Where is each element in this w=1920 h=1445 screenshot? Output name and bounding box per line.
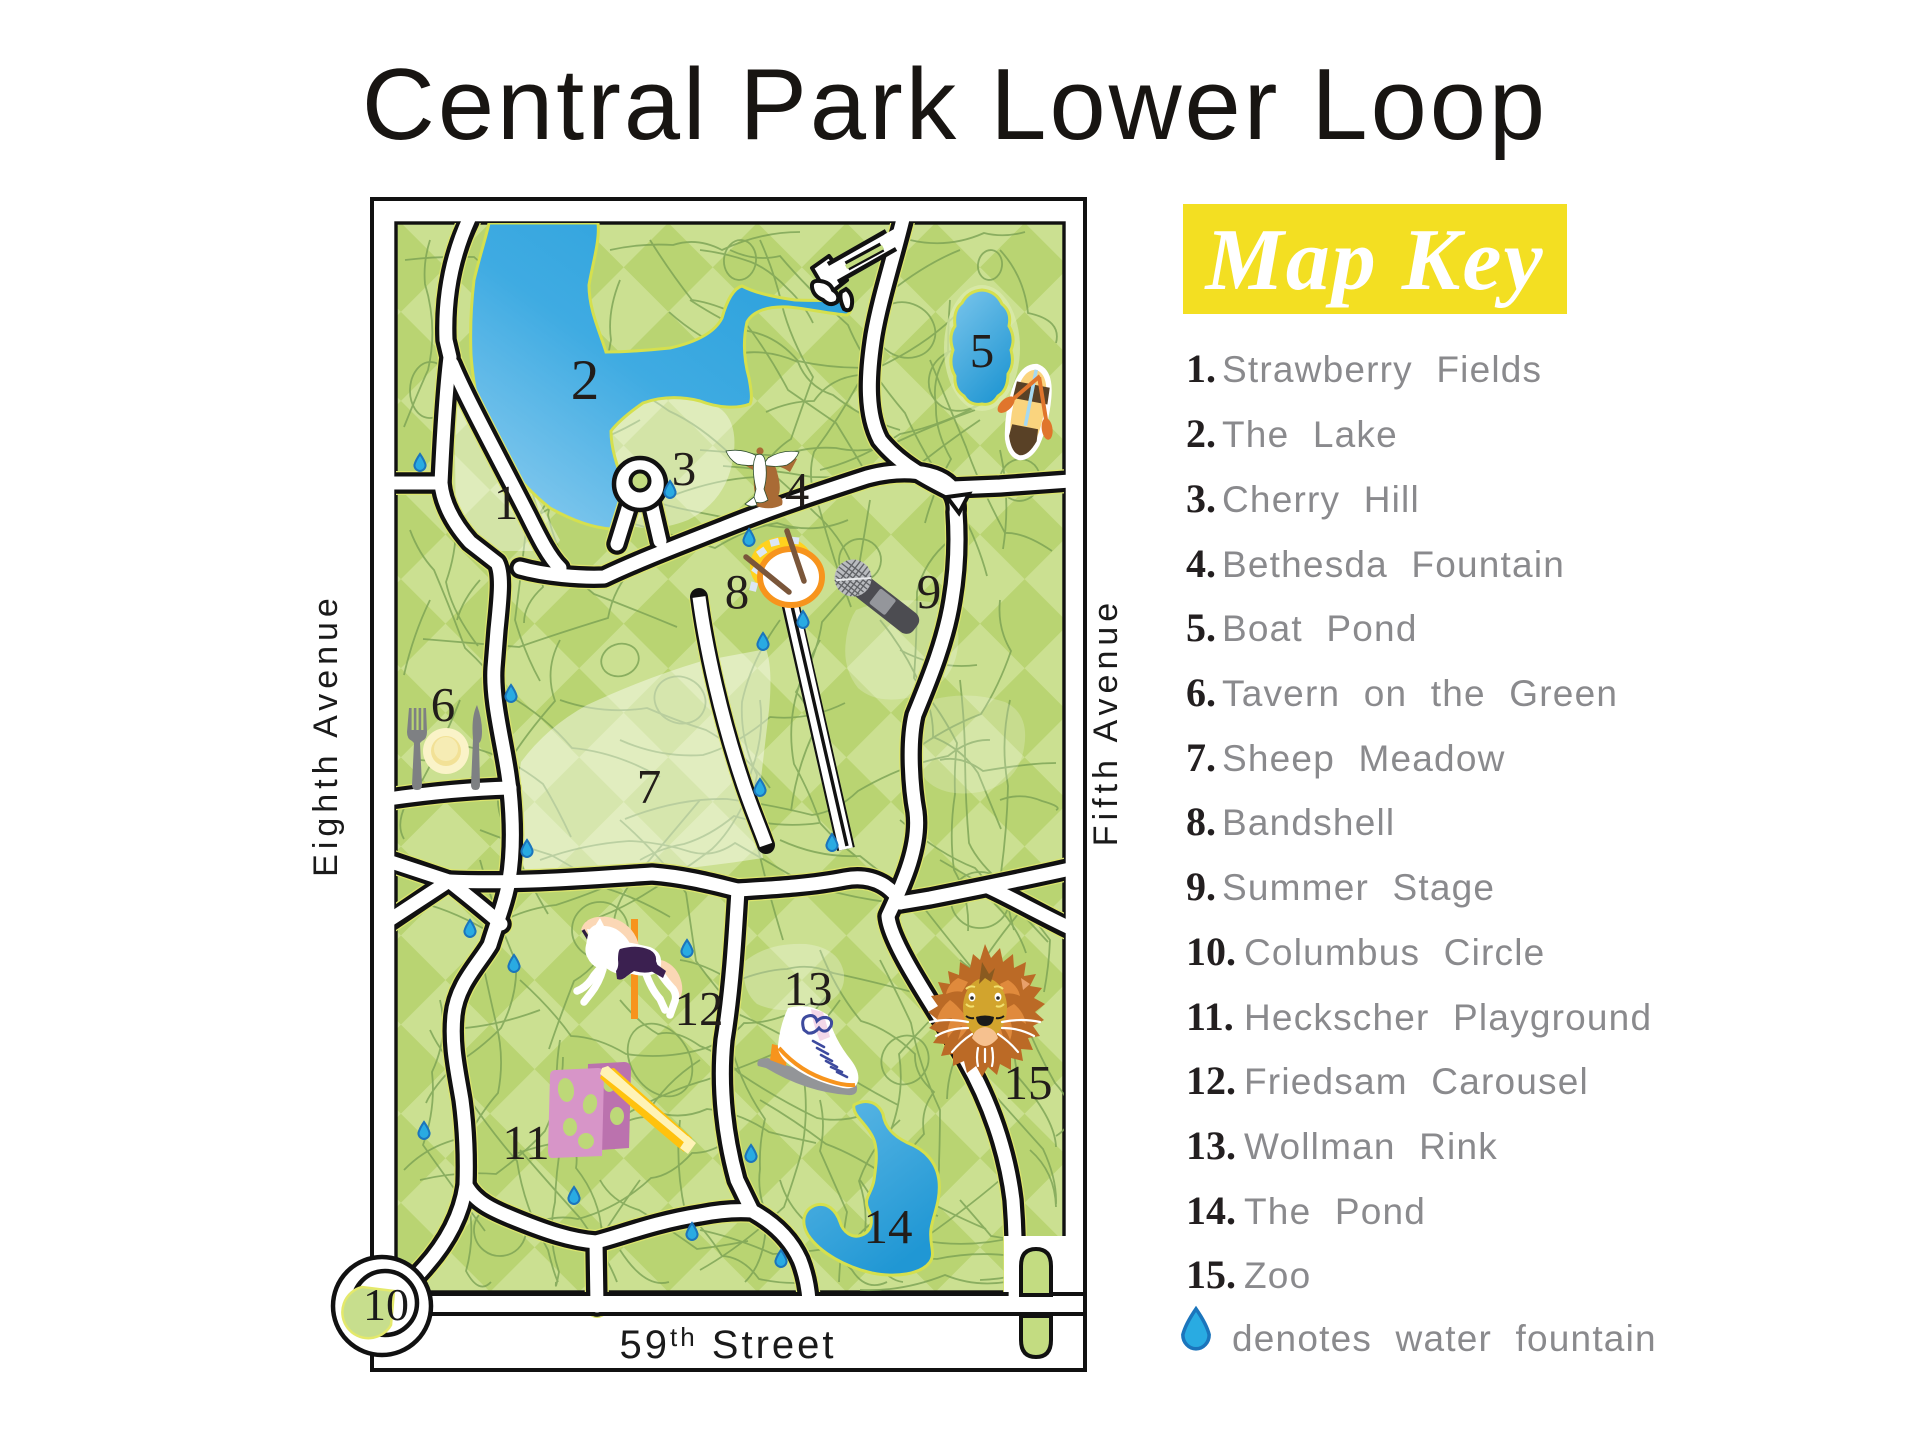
svg-text:Heckscher Playground: Heckscher Playground: [1244, 997, 1652, 1038]
svg-text:13: 13: [784, 961, 833, 1016]
svg-text:1: 1: [494, 475, 519, 530]
svg-text:Central Park Lower Loop: Central Park Lower Loop: [362, 49, 1548, 161]
svg-text:Summer Stage: Summer Stage: [1222, 867, 1495, 908]
svg-text:15: 15: [1004, 1055, 1053, 1110]
svg-text:10.: 10.: [1186, 929, 1236, 974]
svg-text:3: 3: [672, 441, 697, 496]
svg-text:6.: 6.: [1186, 670, 1216, 715]
svg-text:9.: 9.: [1186, 864, 1216, 909]
svg-text:13.: 13.: [1186, 1123, 1236, 1168]
svg-text:The Pond: The Pond: [1244, 1191, 1426, 1232]
svg-text:11.: 11.: [1186, 994, 1234, 1039]
svg-text:2: 2: [571, 349, 600, 412]
svg-text:Friedsam Carousel: Friedsam Carousel: [1244, 1061, 1589, 1102]
svg-text:Cherry Hill: Cherry Hill: [1222, 479, 1420, 520]
svg-text:Bethesda Fountain: Bethesda Fountain: [1222, 544, 1565, 585]
svg-text:Bandshell: Bandshell: [1222, 802, 1395, 843]
svg-text:denotes water fountain: denotes water fountain: [1232, 1318, 1657, 1359]
svg-text:The Lake: The Lake: [1222, 414, 1398, 455]
svg-text:14: 14: [864, 1199, 913, 1254]
svg-text:9: 9: [917, 564, 942, 619]
svg-text:59th Street: 59th Street: [619, 1322, 836, 1367]
svg-text:Eighth Avenue: Eighth Avenue: [307, 593, 345, 877]
svg-text:Strawberry Fields: Strawberry Fields: [1222, 349, 1542, 390]
svg-text:7.: 7.: [1186, 735, 1216, 780]
svg-text:Columbus Circle: Columbus Circle: [1244, 932, 1545, 973]
svg-text:3.: 3.: [1186, 476, 1216, 521]
svg-text:12.: 12.: [1186, 1058, 1236, 1103]
svg-text:2.: 2.: [1186, 411, 1216, 456]
svg-text:Fifth Avenue: Fifth Avenue: [1087, 598, 1125, 846]
svg-text:4: 4: [785, 462, 810, 517]
svg-text:Zoo: Zoo: [1244, 1255, 1311, 1296]
svg-text:Boat Pond: Boat Pond: [1222, 608, 1418, 649]
svg-text:1.: 1.: [1186, 346, 1216, 391]
svg-text:12: 12: [675, 981, 724, 1036]
svg-text:Wollman Rink: Wollman Rink: [1244, 1126, 1498, 1167]
svg-text:Tavern on the Green: Tavern on the Green: [1222, 673, 1618, 714]
svg-text:5: 5: [970, 323, 995, 378]
svg-text:5.: 5.: [1186, 605, 1216, 650]
svg-text:8.: 8.: [1186, 799, 1216, 844]
svg-text:4.: 4.: [1186, 541, 1216, 586]
svg-text:7: 7: [637, 759, 662, 814]
svg-text:14.: 14.: [1186, 1188, 1236, 1233]
svg-text:8: 8: [725, 564, 750, 619]
svg-text:11: 11: [502, 1115, 549, 1170]
svg-text:Sheep Meadow: Sheep Meadow: [1222, 738, 1506, 779]
svg-text:6: 6: [431, 677, 456, 732]
svg-text:10: 10: [363, 1279, 409, 1330]
svg-text:15.: 15.: [1186, 1252, 1236, 1297]
svg-text:Map Key: Map Key: [1203, 212, 1544, 309]
